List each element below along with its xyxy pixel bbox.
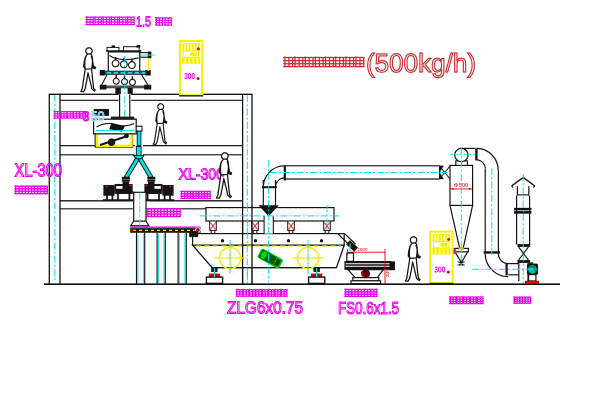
svg-text:50: 50 xyxy=(91,109,105,124)
svg-text:300: 300 xyxy=(434,266,445,275)
svg-text:3: 3 xyxy=(83,109,90,124)
svg-text:(500kg/h): (500kg/h) xyxy=(366,48,476,78)
svg-text:1.5: 1.5 xyxy=(136,14,151,31)
svg-text:XL-300: XL-300 xyxy=(179,167,225,184)
svg-text:ZLG6x0.75: ZLG6x0.75 xyxy=(227,298,303,318)
svg-text:XL-300: XL-300 xyxy=(15,161,63,181)
svg-text:345: 345 xyxy=(385,269,391,277)
svg-text:1500: 1500 xyxy=(358,247,368,253)
svg-text:300: 300 xyxy=(184,72,195,81)
svg-text:FS0.6x1.5: FS0.6x1.5 xyxy=(338,298,399,318)
